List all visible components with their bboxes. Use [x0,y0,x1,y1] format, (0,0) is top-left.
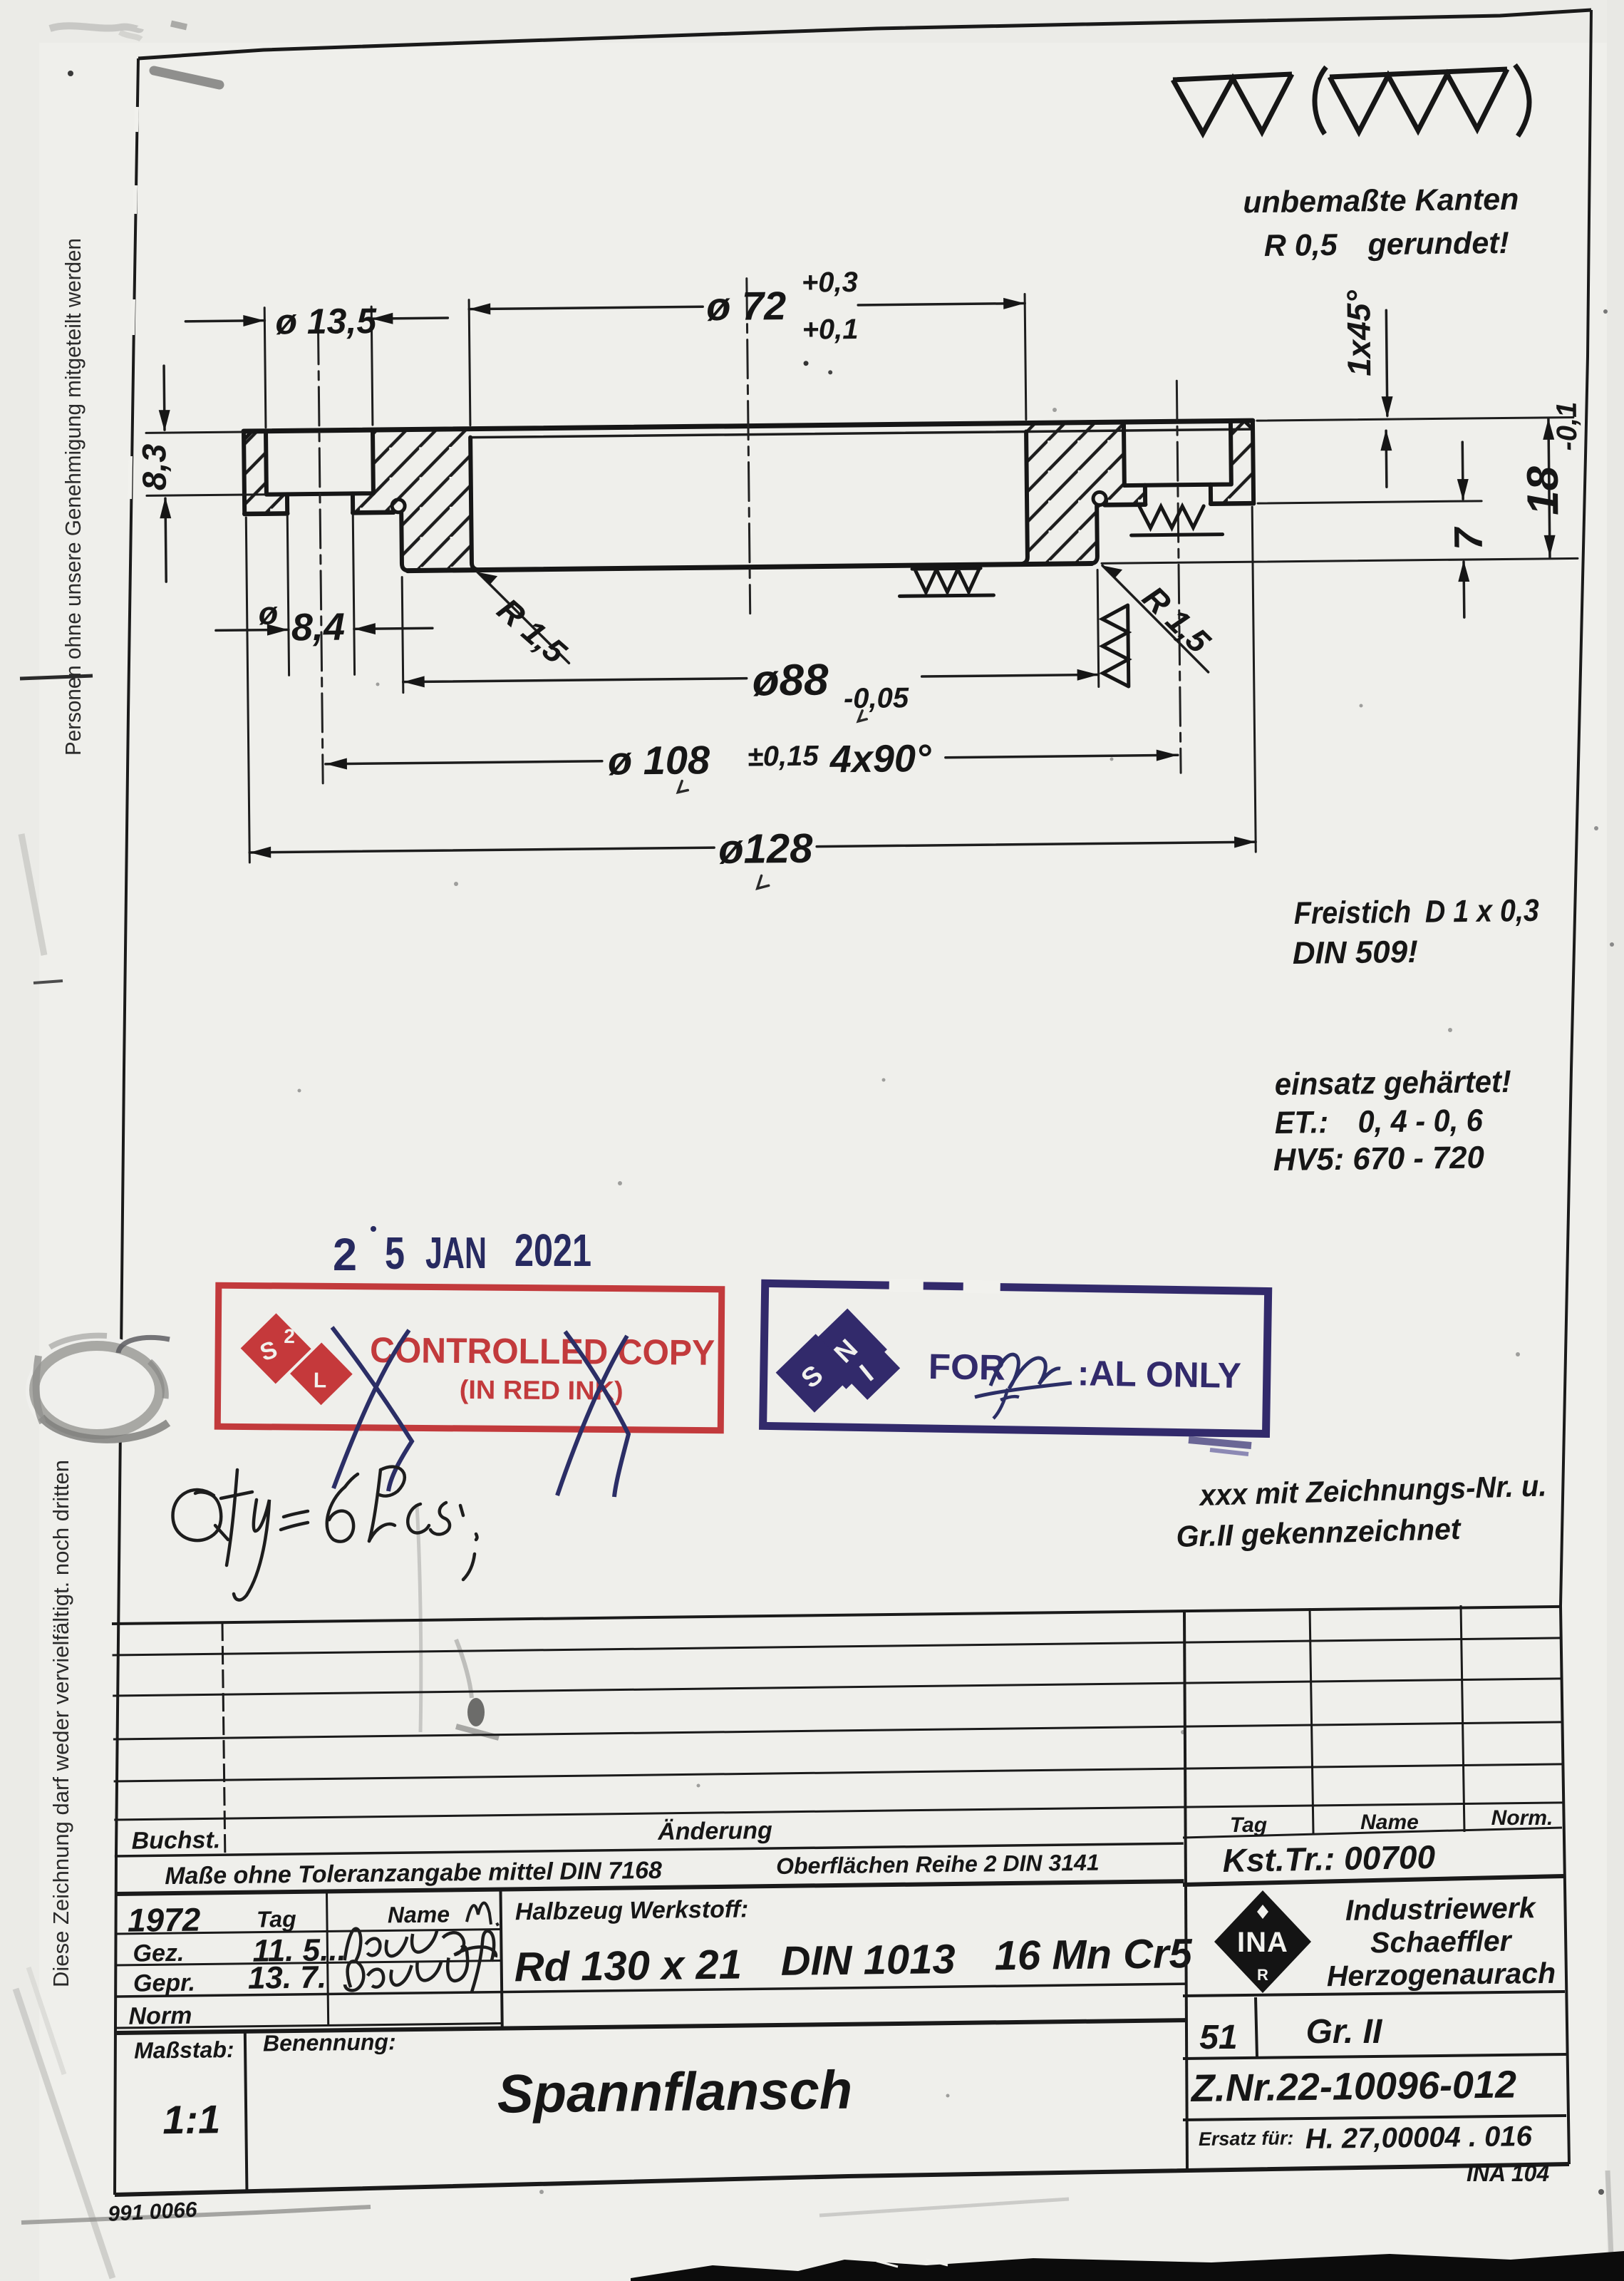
svg-text:DIN 1013: DIN 1013 [780,1936,956,1984]
svg-text:8,4: 8,4 [291,606,346,649]
svg-text:Z.Nr.22-10096-012: Z.Nr.22-10096-012 [1189,2063,1516,2110]
svg-text:18: 18 [1519,465,1568,515]
svg-text:Ersatz für:: Ersatz für: [1199,2127,1294,2150]
svg-text:991 0066: 991 0066 [108,2198,198,2226]
svg-text:CONTROLLED COPY: CONTROLLED COPY [370,1330,715,1373]
svg-text:ø 72: ø 72 [706,283,787,329]
svg-text:2021: 2021 [514,1225,591,1276]
svg-text:1x45°: 1x45° [1340,289,1377,376]
svg-text:INA 104: INA 104 [1467,2161,1549,2186]
svg-text:4x90°: 4x90° [829,737,932,781]
svg-text:Oberflächen Reihe 2 DIN 3141: Oberflächen Reihe 2 DIN 3141 [776,1850,1100,1879]
svg-text:INA: INA [1237,1927,1288,1958]
svg-text:-0,05: -0,05 [844,682,909,714]
svg-text:HV5: 670 - 720: HV5: 670 - 720 [1273,1140,1485,1178]
svg-text:Kst.Tr.: 00700: Kst.Tr.: 00700 [1222,1838,1436,1879]
svg-text:JAN: JAN [425,1229,487,1278]
svg-text:Spannflansch: Spannflansch [497,2060,852,2125]
svg-text:DIN 509!: DIN 509! [1293,934,1419,971]
svg-text:Name: Name [1360,1811,1419,1834]
svg-text:Gepr.: Gepr. [133,1970,195,1997]
svg-text:H. 27,00004 . 016: H. 27,00004 . 016 [1305,2121,1533,2155]
svg-text:Rd 130 x 21: Rd 130 x 21 [514,1942,742,1991]
svg-text:2: 2 [284,1325,295,1347]
svg-text:ø128: ø128 [718,825,814,872]
svg-text:+0,3: +0,3 [802,267,858,299]
svg-text:1972: 1972 [128,1901,201,1939]
svg-text:Buchst.: Buchst. [131,1826,220,1854]
svg-text:R 0,5 gerundet!: R 0,5 gerundet! [1264,226,1510,263]
svg-text:51: 51 [1199,2019,1237,2056]
svg-text:Personen ohne unsere Genehmigu: Personen ohne unsere Genehmigung mitgete… [61,238,86,756]
svg-text:ET.: 0, 4 - 0, 6: ET.: 0, 4 - 0, 6 [1275,1103,1484,1140]
svg-text:16 Mn Cr5: 16 Mn Cr5 [994,1930,1193,1979]
svg-text:7: 7 [1445,526,1490,551]
svg-text:Herzogenaurach: Herzogenaurach [1327,1957,1556,1992]
svg-text:Benennung:: Benennung: [263,2029,396,2056]
svg-text:ø: ø [258,595,278,632]
svg-text:Industriewerk: Industriewerk [1345,1891,1537,1927]
svg-text:einsatz gehärtet!: einsatz gehärtet! [1275,1064,1512,1102]
svg-text:Tag: Tag [257,1906,296,1932]
svg-text:Gez.: Gez. [133,1940,184,1967]
svg-text:unbemaßte Kanten: unbemaßte Kanten [1243,182,1519,220]
svg-text:-0,1: -0,1 [1551,401,1583,450]
svg-text:13. 7.: 13. 7. [248,1960,327,1995]
svg-text:L: L [314,1369,327,1392]
svg-text:ø 13,5: ø 13,5 [275,301,378,341]
svg-text::AL ONLY: :AL ONLY [1077,1353,1241,1396]
svg-text:FOR: FOR [929,1347,1006,1388]
svg-text:Norm: Norm [128,2002,192,2030]
svg-text:Maßstab:: Maßstab: [134,2037,234,2064]
svg-text:Gr. II: Gr. II [1306,2013,1383,2051]
svg-text:8,3: 8,3 [135,443,173,490]
svg-text:+0,1: +0,1 [802,314,858,346]
svg-text:2: 2 [333,1229,357,1280]
svg-text:R: R [1257,1966,1268,1984]
svg-text:±0,15: ±0,15 [748,741,819,773]
svg-text:5: 5 [385,1227,405,1279]
svg-text:Freistich D 1 x 0,3: Freistich D 1 x 0,3 [1294,893,1540,931]
svg-text:Änderung: Änderung [657,1817,772,1845]
svg-text:ø88: ø88 [752,655,829,705]
svg-text:Halbzeug Werkstoff:: Halbzeug Werkstoff: [515,1895,749,1925]
svg-text:Name: Name [388,1901,450,1927]
svg-text:Schaeffler: Schaeffler [1370,1925,1513,1960]
svg-text:Diese Zeichnung darf weder ver: Diese Zeichnung darf weder vervielfältig… [48,1460,73,1987]
svg-text:1:1: 1:1 [162,2096,221,2142]
svg-text:ø 108: ø 108 [608,737,711,783]
svg-text:Norm.: Norm. [1491,1806,1553,1830]
svg-text:Tag: Tag [1230,1813,1267,1837]
